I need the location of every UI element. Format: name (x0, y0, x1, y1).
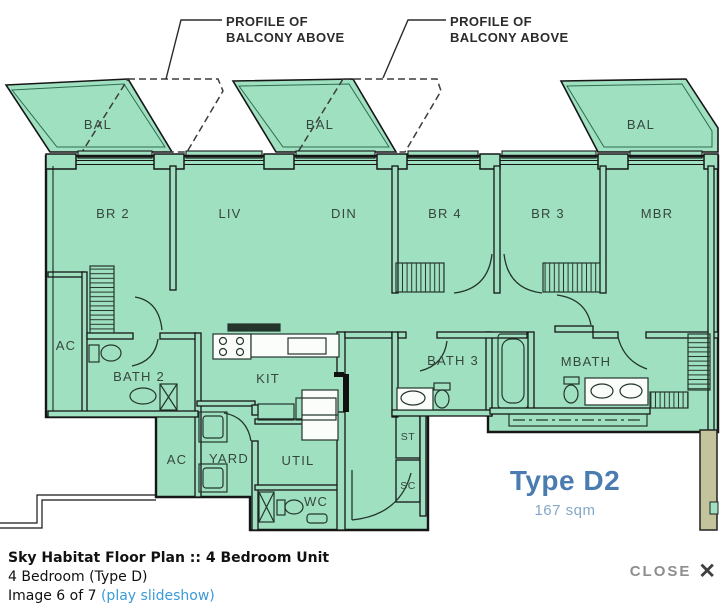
room-label-ac-lower: AC (167, 452, 187, 467)
caption-position-row: Image 6 of 7 (play slideshow) (8, 587, 568, 606)
play-slideshow-link[interactable]: (play slideshow) (101, 588, 215, 604)
room-label-liv: LIV (218, 206, 241, 221)
room-label-br3: BR 3 (531, 206, 565, 221)
room-label-bath3: BATH 3 (427, 353, 479, 368)
room-label-bal1: BAL (84, 117, 112, 132)
room-label-br2: BR 2 (96, 206, 130, 221)
unit-type-area: 167 sqm (534, 502, 595, 519)
room-label-din: DIN (331, 206, 357, 221)
caption-subtitle: 4 Bedroom (Type D) (8, 568, 568, 587)
room-label-bath2: BATH 2 (113, 369, 165, 384)
image-position: Image 6 of 7 (8, 588, 97, 604)
close-button[interactable]: CLOSE ✕ (630, 561, 716, 582)
room-label-sc: SC (400, 480, 416, 492)
close-label: CLOSE (630, 563, 692, 580)
floor-plan-image: PROFILE OF BALCONY ABOVE PROFILE OF BALC… (0, 0, 720, 545)
caption-title: Sky Habitat Floor Plan :: 4 Bedroom Unit (8, 549, 568, 568)
lightbox-floorplan-viewer: PROFILE OF BALCONY ABOVE PROFILE OF BALC… (0, 0, 720, 615)
adjacent-shaft (700, 430, 718, 530)
room-label-mbr: MBR (641, 206, 674, 221)
room-label-util: UTIL (282, 453, 315, 468)
room-label-mbath: MBATH (561, 354, 612, 369)
room-label-ac-upper: AC (56, 338, 76, 353)
caption: Sky Habitat Floor Plan :: 4 Bedroom Unit… (8, 549, 568, 606)
room-label-br4: BR 4 (428, 206, 462, 221)
room-label-kit: KIT (256, 371, 280, 386)
unit-type-code: Type D2 (510, 465, 620, 496)
room-label-wc: WC (304, 494, 328, 509)
callout-1-line2: BALCONY ABOVE (226, 30, 345, 45)
room-label-yard: YARD (209, 451, 249, 466)
close-icon: ✕ (698, 561, 716, 582)
party-wall-step (0, 495, 156, 528)
callout-2-line1: PROFILE OF (450, 14, 532, 29)
room-label-st: ST (401, 431, 416, 443)
balconies (6, 79, 718, 152)
room-label-bal3: BAL (627, 117, 655, 132)
callout-1-line1: PROFILE OF (226, 14, 308, 29)
room-label-bal2: BAL (306, 117, 334, 132)
callout-2-line2: BALCONY ABOVE (450, 30, 569, 45)
